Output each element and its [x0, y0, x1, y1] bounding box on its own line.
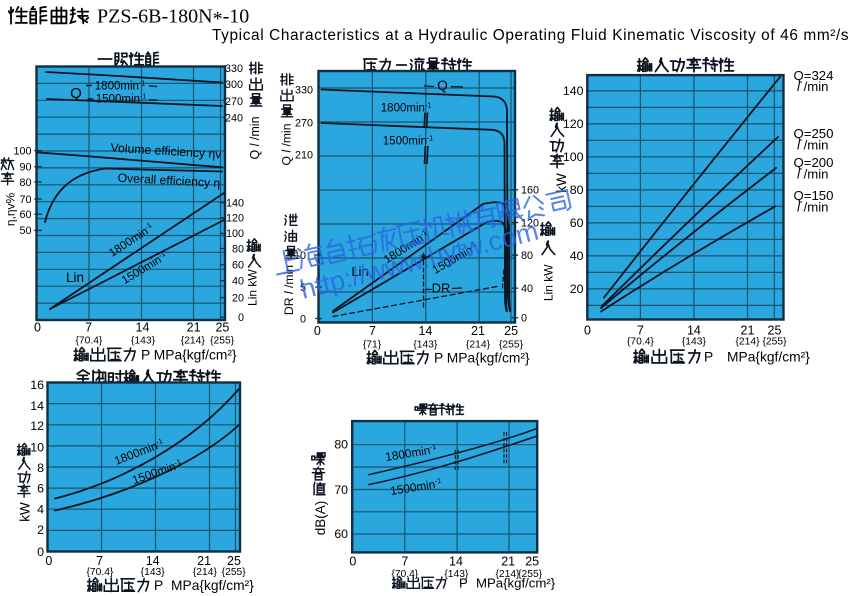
svg-text:8: 8: [37, 461, 44, 475]
svg-text:240: 240: [225, 112, 243, 124]
svg-text:14: 14: [136, 321, 150, 335]
svg-text:1800min-1: 1800min-1: [381, 102, 431, 115]
svg-text:Q l /min: Q l /min: [248, 116, 262, 159]
svg-text:100: 100: [226, 228, 244, 240]
svg-text:Q: Q: [70, 85, 82, 102]
svg-text:{214}: {214}: [181, 336, 206, 347]
svg-text:Q: Q: [437, 78, 448, 93]
svg-text:21: 21: [741, 324, 755, 338]
svg-text:50: 50: [19, 225, 31, 237]
svg-text:Lin kW: Lin kW: [542, 264, 556, 301]
svg-text:100: 100: [13, 145, 31, 157]
svg-text:0: 0: [45, 554, 52, 568]
svg-text:{143}: {143}: [131, 336, 156, 347]
svg-text:MPa{kgf/cm²}: MPa{kgf/cm²}: [727, 350, 810, 365]
svg-text:25: 25: [768, 324, 782, 338]
svg-text:25: 25: [525, 555, 539, 569]
svg-text:P MPa{kgf/cm²}: P MPa{kgf/cm²}: [141, 348, 237, 363]
svg-text:60: 60: [232, 260, 244, 272]
svg-text:1800min-1: 1800min-1: [95, 80, 145, 93]
svg-text:10: 10: [30, 440, 44, 454]
svg-text:l /min: l /min: [797, 137, 829, 152]
svg-text:{70.4}: {70.4}: [75, 336, 102, 347]
svg-text:80: 80: [521, 250, 533, 262]
svg-text:Typical Characteristics at a H: Typical Characteristics at a Hydraulic O…: [212, 27, 849, 44]
svg-text:7: 7: [85, 321, 92, 335]
svg-text:{255}: {255}: [499, 340, 524, 351]
svg-text:7: 7: [401, 555, 408, 569]
svg-text:21: 21: [187, 321, 201, 335]
svg-text:l /min: l /min: [797, 79, 829, 94]
svg-text:80: 80: [570, 183, 584, 197]
svg-text:40: 40: [570, 249, 584, 263]
svg-text:14: 14: [687, 324, 701, 338]
svg-text:{255}: {255}: [210, 336, 235, 347]
svg-text:40: 40: [232, 276, 244, 288]
svg-text:1500min-1: 1500min-1: [383, 135, 433, 148]
svg-text:P: P: [154, 578, 163, 593]
svg-text:270: 270: [295, 117, 313, 129]
svg-text:20: 20: [570, 282, 584, 296]
svg-text:6: 6: [37, 482, 44, 496]
svg-text:0: 0: [238, 312, 244, 324]
svg-text:100: 100: [563, 150, 584, 164]
svg-text:DR: DR: [432, 281, 451, 296]
svg-text:{255}: {255}: [222, 567, 247, 578]
svg-text:300: 300: [225, 79, 243, 91]
svg-text:Lin: Lin: [66, 270, 84, 285]
svg-text:0: 0: [34, 321, 41, 335]
svg-text:η,ηv%: η,ηv%: [4, 192, 18, 226]
svg-text:140: 140: [563, 84, 584, 98]
svg-text:0: 0: [314, 324, 321, 338]
svg-text:90: 90: [19, 162, 31, 174]
svg-text:P MPa{kgf/cm²}: P MPa{kgf/cm²}: [434, 351, 530, 366]
svg-text:21: 21: [501, 555, 515, 569]
svg-text:70: 70: [19, 194, 31, 206]
svg-text:7: 7: [369, 324, 376, 338]
svg-text:14: 14: [449, 555, 463, 569]
svg-text:{214}: {214}: [735, 337, 760, 348]
svg-text:{70.4}: {70.4}: [627, 337, 654, 348]
svg-text:{143}: {143}: [682, 337, 707, 348]
svg-text:60: 60: [19, 209, 31, 221]
svg-text:{214}: {214}: [193, 567, 218, 578]
svg-text:0: 0: [521, 313, 527, 325]
svg-text:0: 0: [584, 324, 591, 338]
svg-text:270: 270: [225, 96, 243, 108]
svg-text:12: 12: [30, 419, 44, 433]
svg-text:0: 0: [349, 555, 356, 569]
svg-text:14: 14: [418, 324, 432, 338]
svg-text:kW: kW: [18, 502, 33, 522]
svg-text:7: 7: [637, 324, 644, 338]
svg-text:{143}: {143}: [413, 340, 438, 351]
svg-text:25: 25: [504, 324, 518, 338]
svg-text:80: 80: [334, 437, 348, 451]
svg-text:P: P: [704, 350, 713, 365]
svg-text:330: 330: [295, 85, 313, 97]
svg-text:MPa{kgf/cm²}: MPa{kgf/cm²}: [476, 575, 556, 590]
svg-text:120: 120: [226, 213, 244, 225]
svg-text:120: 120: [563, 117, 584, 131]
svg-text:{70.4}: {70.4}: [86, 567, 113, 578]
svg-text:{71}: {71}: [363, 340, 382, 351]
svg-text:l /min: l /min: [797, 200, 829, 215]
svg-text:210: 210: [295, 150, 313, 162]
svg-text:0: 0: [300, 313, 306, 325]
svg-text:140: 140: [226, 198, 244, 210]
svg-text:60: 60: [570, 216, 584, 230]
svg-text:14: 14: [30, 399, 44, 413]
svg-text:dB(A): dB(A): [313, 501, 328, 536]
svg-text:21: 21: [471, 324, 485, 338]
svg-text:20: 20: [232, 292, 244, 304]
svg-text:{70.4}: {70.4}: [391, 569, 418, 580]
svg-text:70: 70: [334, 483, 348, 497]
svg-text:25: 25: [215, 321, 229, 335]
svg-text:{143}: {143}: [141, 567, 166, 578]
svg-text:{255}: {255}: [762, 337, 787, 348]
svg-text:160: 160: [521, 185, 539, 197]
svg-text:80: 80: [232, 243, 244, 255]
svg-text:330: 330: [225, 63, 243, 75]
svg-text:16: 16: [30, 378, 44, 392]
svg-text:40: 40: [521, 283, 533, 295]
svg-text:Lin kW: Lin kW: [245, 269, 259, 306]
svg-text:2: 2: [37, 523, 44, 537]
svg-text:P: P: [459, 575, 468, 590]
svg-text:1500min-1: 1500min-1: [96, 93, 146, 106]
svg-text:MPa{kgf/cm²}: MPa{kgf/cm²}: [171, 578, 254, 593]
svg-text:4: 4: [37, 503, 44, 517]
svg-text:{214}: {214}: [466, 340, 491, 351]
svg-text:60: 60: [334, 527, 348, 541]
svg-text:80: 80: [19, 177, 31, 189]
svg-text:l /min: l /min: [797, 167, 829, 182]
svg-text:Q l /min: Q l /min: [280, 123, 294, 165]
svg-text:0: 0: [37, 545, 44, 559]
